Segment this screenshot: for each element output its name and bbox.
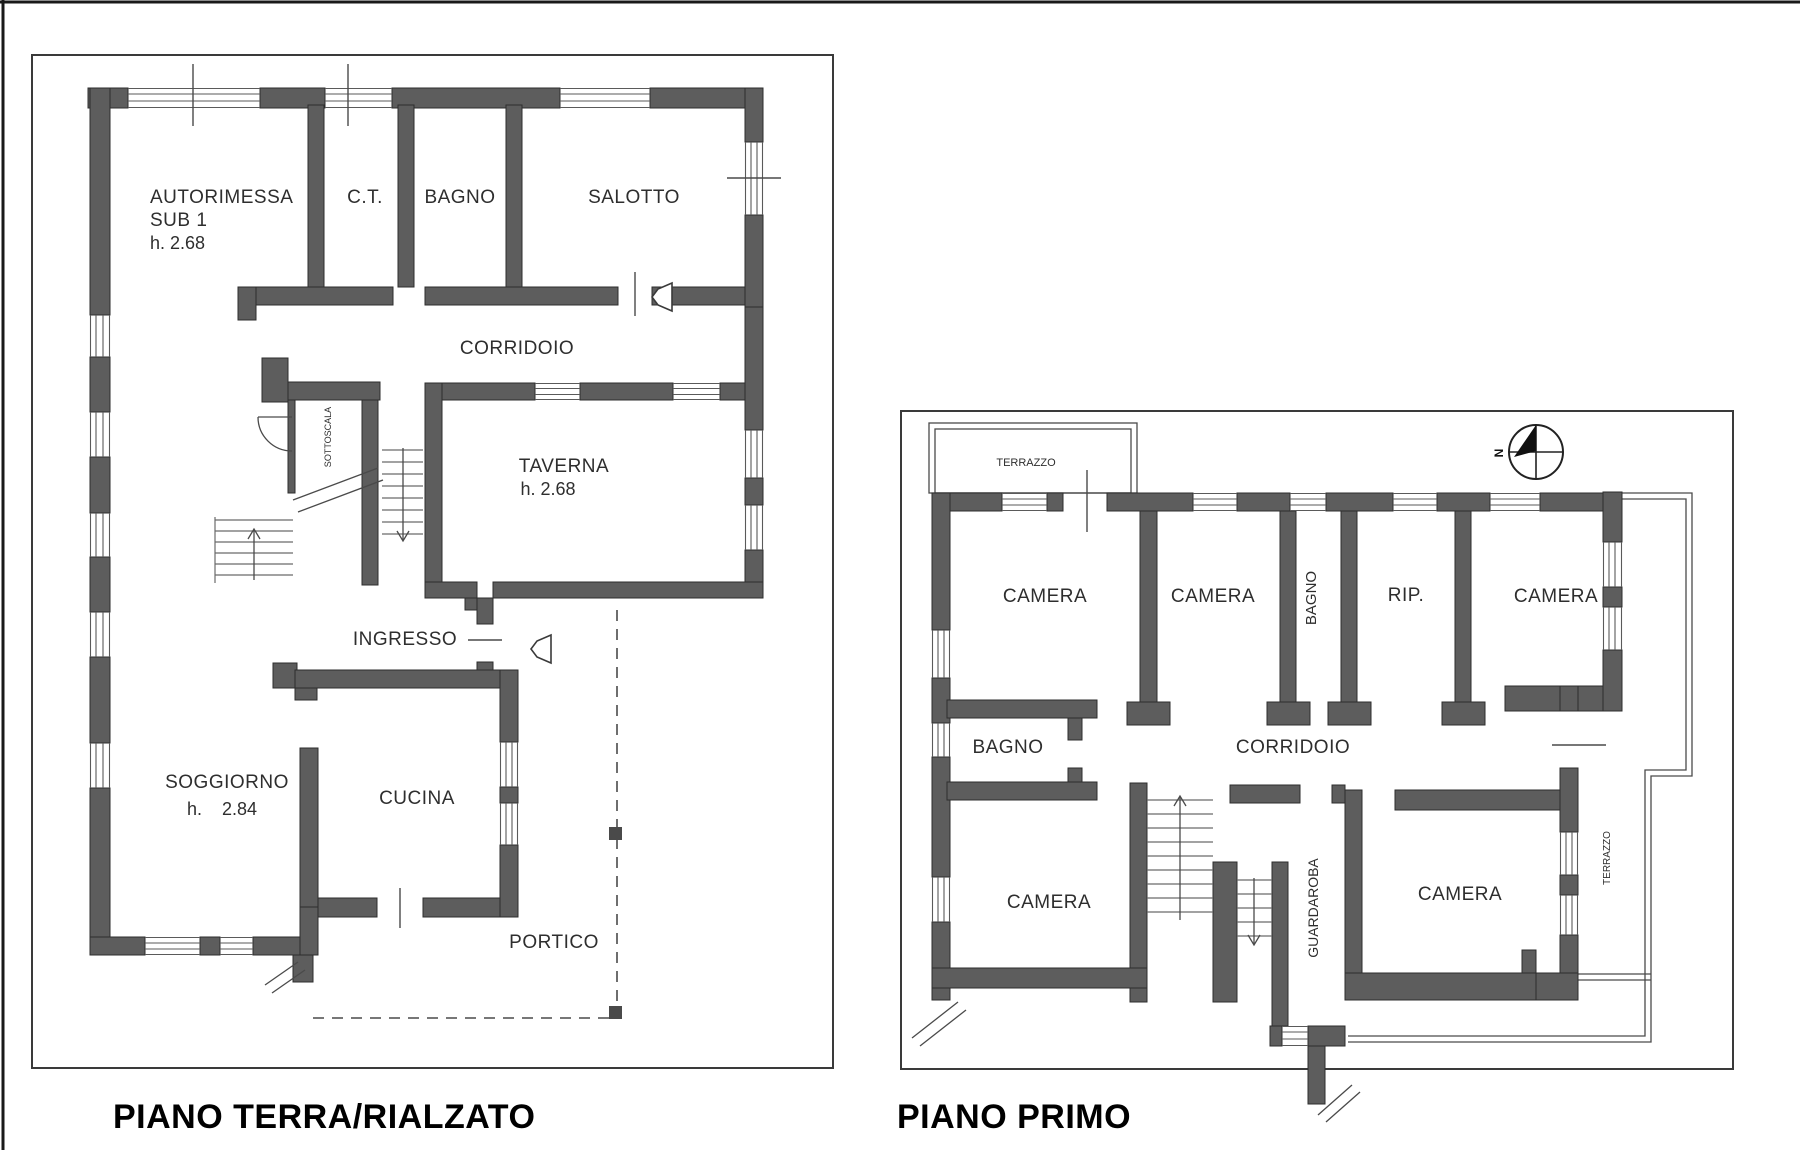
room-label-camera-n2: CAMERA bbox=[1171, 586, 1255, 607]
floor2-title: PIANO PRIMO bbox=[897, 1098, 1131, 1136]
room-label-taverna-h: h. 2.68 bbox=[520, 479, 575, 499]
compass-icon: N bbox=[1492, 424, 1563, 480]
room-label-ct: C.T. bbox=[347, 187, 383, 208]
room-label-camera-nw: CAMERA bbox=[1003, 586, 1087, 607]
floorplan-page: AUTORIMESSA SUB 1 h. 2.68 C.T. BAGNO SAL… bbox=[0, 0, 1800, 1150]
room-label-autorimessa: AUTORIMESSA bbox=[150, 187, 293, 208]
room-label-autorimessa-sub: SUB 1 bbox=[150, 210, 207, 231]
room-label-soggiorno: SOGGIORNO bbox=[165, 772, 289, 793]
compass-north-letter: N bbox=[1492, 449, 1506, 458]
room-label-rip: RIP. bbox=[1388, 585, 1425, 606]
room-label-terrazzo-top: TERRAZZO bbox=[996, 457, 1056, 469]
room-label-guardaroba: GUARDAROBA bbox=[1305, 858, 1321, 958]
room-label-salotto: SALOTTO bbox=[588, 187, 680, 208]
floor1-stairs bbox=[215, 417, 423, 583]
room-label-autorimessa-h: h. 2.68 bbox=[150, 233, 205, 253]
floor2-walls bbox=[932, 492, 1622, 1104]
room-label-taverna: TAVERNA bbox=[519, 456, 609, 477]
sottoscala-door-arc bbox=[258, 417, 292, 451]
room-label-bagno-n: BAGNO bbox=[1303, 571, 1320, 625]
room-label-terrazzo-e: TERRAZZO bbox=[1602, 831, 1613, 885]
room-label-corridoio: CORRIDOIO bbox=[460, 338, 574, 359]
room-label-portico: PORTICO bbox=[509, 932, 599, 953]
floor-plan-drawing: AUTORIMESSA SUB 1 h. 2.68 C.T. BAGNO SAL… bbox=[0, 0, 1800, 1150]
room-label-camera-ne: CAMERA bbox=[1514, 586, 1598, 607]
floor1-plan: AUTORIMESSA SUB 1 h. 2.68 C.T. BAGNO SAL… bbox=[32, 55, 833, 1136]
room-label-cucina: CUCINA bbox=[379, 788, 455, 809]
room-label-camera-sw: CAMERA bbox=[1007, 892, 1091, 913]
floor2-plan: N bbox=[897, 411, 1733, 1136]
room-label-bagno: BAGNO bbox=[424, 187, 495, 208]
floor2-stairs bbox=[1147, 796, 1272, 945]
room-label-bagno-w: BAGNO bbox=[972, 737, 1043, 758]
room-label-sottoscala: SOTTOSCALA bbox=[323, 407, 333, 467]
room-label-ingresso: INGRESSO bbox=[353, 629, 457, 650]
floor1-title: PIANO TERRA/RIALZATO bbox=[113, 1098, 535, 1136]
door-swing-icon bbox=[531, 635, 551, 663]
room-label-corridoio-f2: CORRIDOIO bbox=[1236, 737, 1350, 758]
room-label-soggiorno-h: h. 2.84 bbox=[187, 799, 257, 819]
room-label-camera-se: CAMERA bbox=[1418, 884, 1502, 905]
